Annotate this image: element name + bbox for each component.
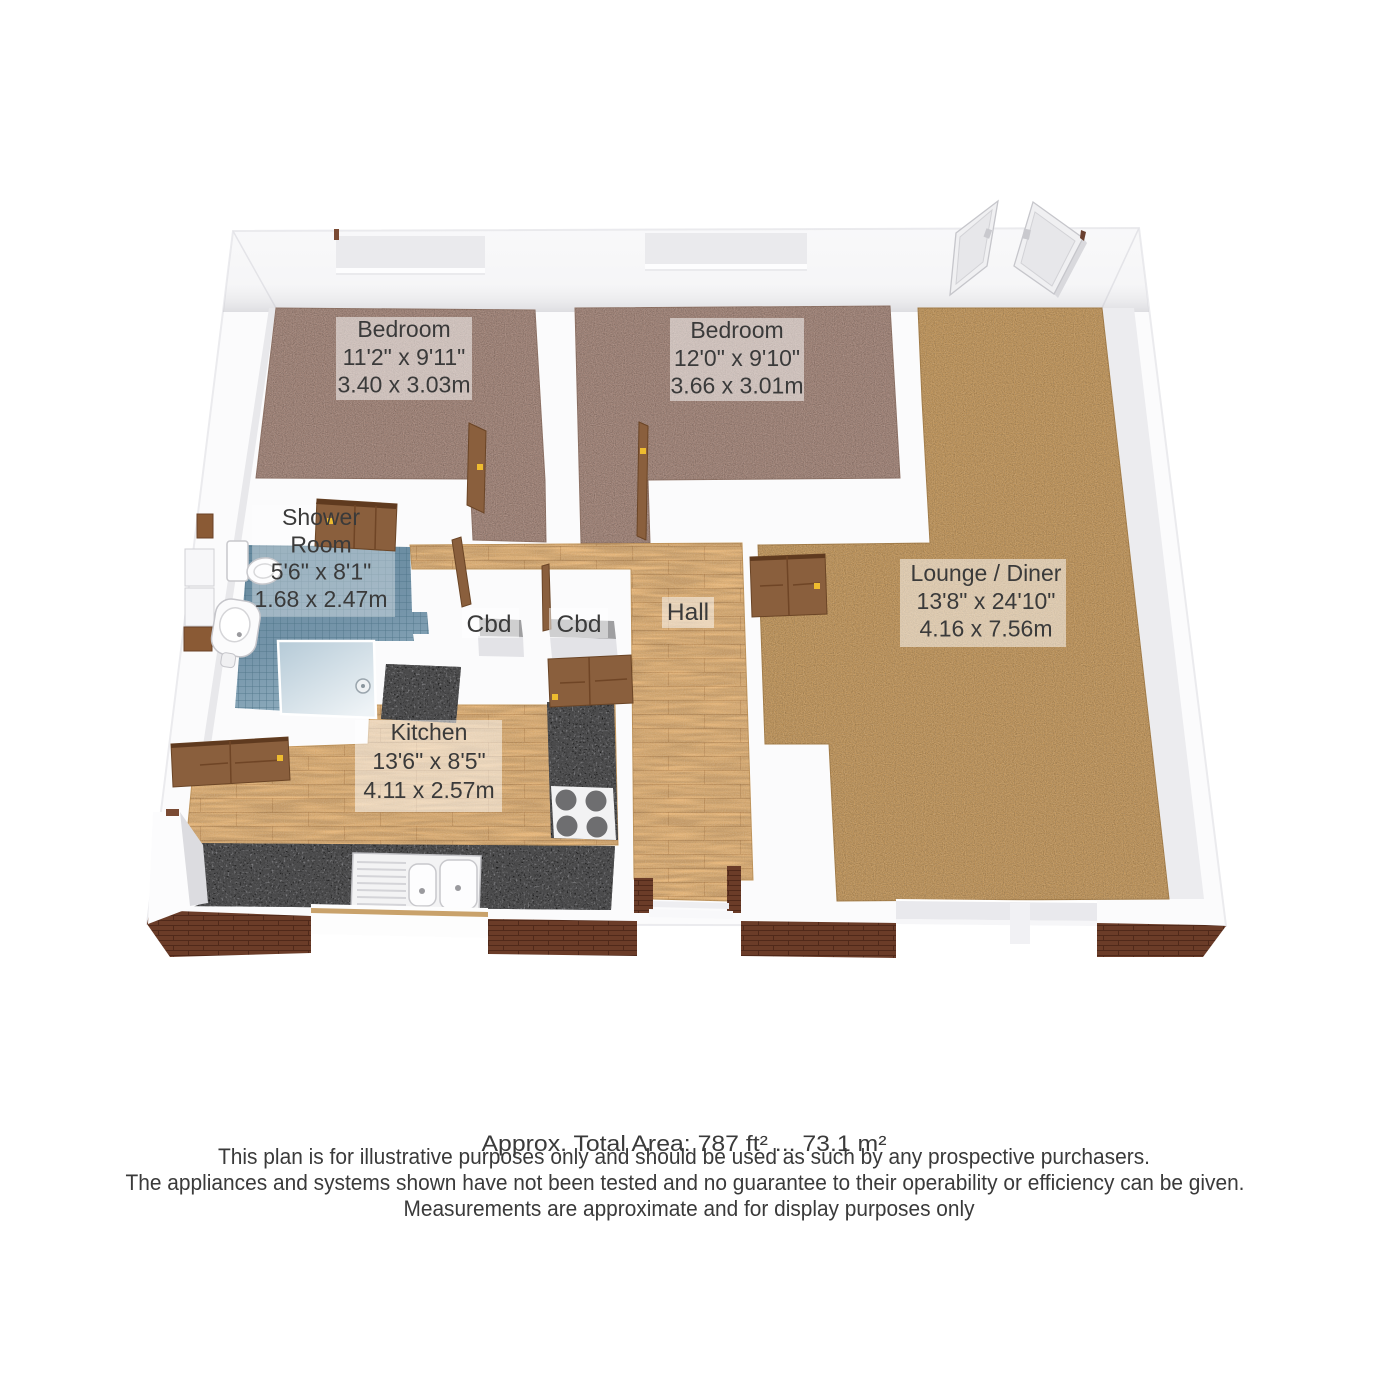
svg-text:Shower: Shower [282,504,360,530]
svg-text:The appliances and systems sho: The appliances and systems shown have no… [126,1170,1245,1195]
svg-text:Room: Room [290,531,351,557]
svg-text:13'6" x 8'5": 13'6" x 8'5" [372,748,485,774]
svg-text:Kitchen: Kitchen [391,719,468,745]
svg-text:13'8" x 24'10": 13'8" x 24'10" [917,588,1056,614]
svg-text:Cbd: Cbd [467,611,512,638]
svg-text:4.16 x 7.56m: 4.16 x 7.56m [920,616,1053,642]
svg-text:Bedroom: Bedroom [357,316,450,342]
svg-text:4.11 x 2.57m: 4.11 x 2.57m [363,777,494,803]
svg-text:3.40 x 3.03m: 3.40 x 3.03m [338,372,471,398]
svg-text:11'2" x 9'11": 11'2" x 9'11" [343,344,466,370]
svg-text:3.66 x 3.01m: 3.66 x 3.01m [671,373,804,399]
svg-text:1.68 x 2.47m: 1.68 x 2.47m [255,586,388,612]
svg-text:12'0" x 9'10": 12'0" x 9'10" [674,345,800,371]
svg-text:Cbd: Cbd [557,611,602,638]
svg-text:This plan is for illustrative: This plan is for illustrative purposes o… [218,1144,1150,1169]
svg-text:Bedroom: Bedroom [690,317,783,343]
svg-text:Hall: Hall [667,599,709,626]
svg-text:Lounge / Diner: Lounge / Diner [911,560,1062,586]
svg-text:5'6" x 8'1": 5'6" x 8'1" [271,559,372,585]
svg-text:Measurements are approximate a: Measurements are approximate and for dis… [404,1196,975,1221]
